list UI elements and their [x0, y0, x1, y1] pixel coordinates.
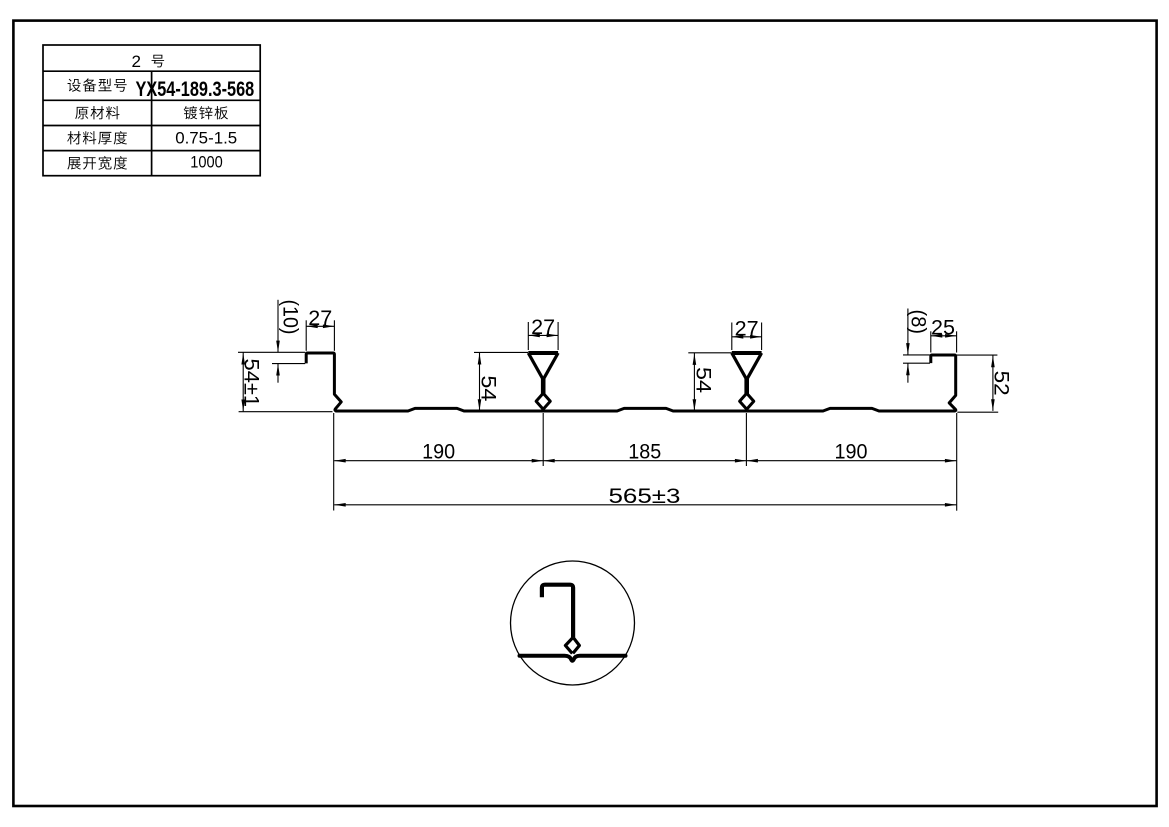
svg-text:565±3: 565±3	[609, 485, 681, 508]
svg-text:25: 25	[931, 317, 955, 340]
svg-text:1000: 1000	[190, 152, 223, 171]
svg-text:27: 27	[735, 318, 759, 341]
svg-text:2: 2	[132, 53, 142, 71]
svg-text:54: 54	[477, 375, 500, 401]
svg-text:(10): (10)	[279, 300, 302, 335]
svg-text:190: 190	[422, 441, 455, 464]
svg-text:190: 190	[835, 441, 868, 464]
svg-text:54±1: 54±1	[240, 359, 263, 408]
svg-text:YX54-189.3-568: YX54-189.3-568	[136, 78, 255, 101]
svg-text:185: 185	[628, 441, 661, 464]
svg-text:0.75-1.5: 0.75-1.5	[175, 128, 237, 147]
svg-text:52: 52	[990, 371, 1013, 396]
svg-text:(8): (8)	[907, 310, 930, 335]
svg-text:54: 54	[692, 367, 715, 393]
svg-text:27: 27	[531, 316, 555, 339]
svg-text:27: 27	[308, 307, 332, 330]
